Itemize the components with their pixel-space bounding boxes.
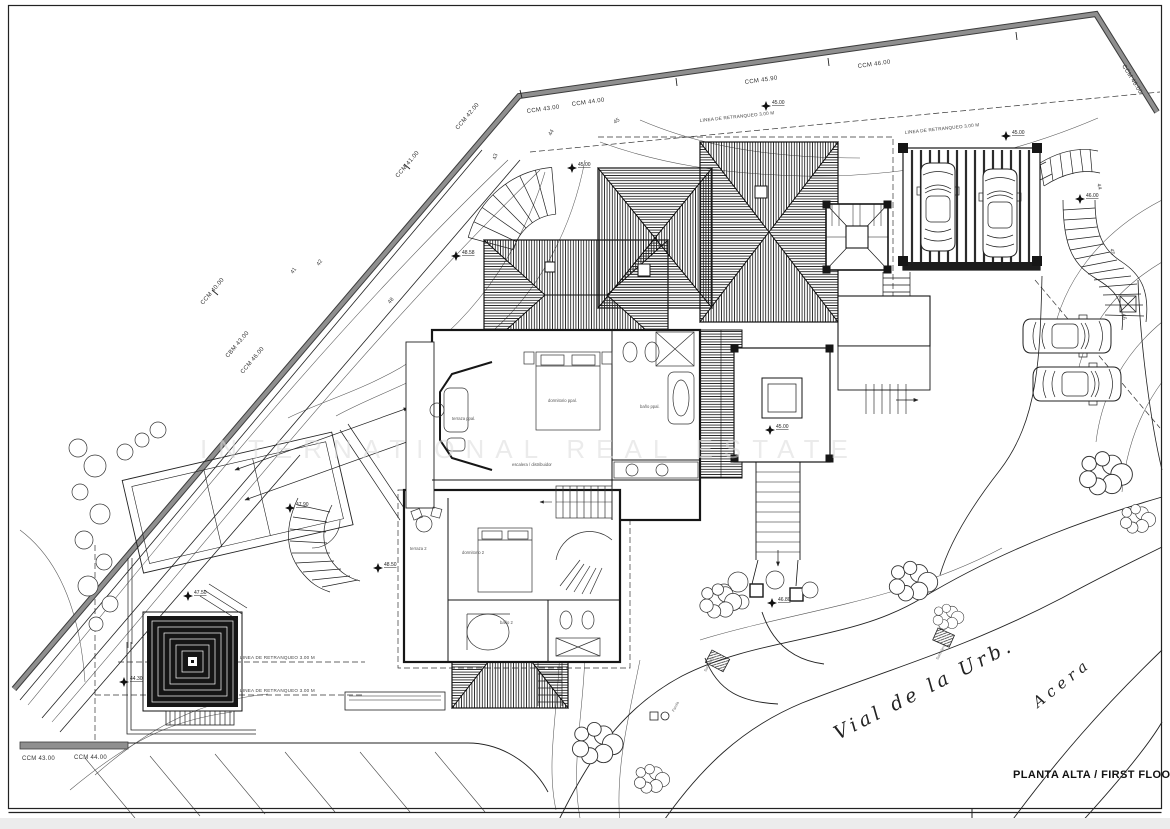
road-name-label: Vial de la Urb. bbox=[830, 634, 1017, 744]
plan-drawing: LINEA DE RETRANQUEO 3.00 M LINEA DE RETR… bbox=[0, 0, 1170, 829]
sidewalk-label: Acera bbox=[1028, 654, 1095, 712]
parked-car bbox=[1033, 363, 1121, 405]
parked-car bbox=[917, 163, 959, 251]
drawing-title: PLANTA ALTA / FIRST FLOOR bbox=[1013, 769, 1170, 781]
carport bbox=[898, 143, 1042, 270]
svg-text:45.00: 45.00 bbox=[772, 100, 785, 106]
wall-elevation-label: CCM 41.00 bbox=[395, 150, 421, 179]
svg-text:45: 45 bbox=[613, 117, 621, 125]
room-label: baño 2 bbox=[500, 620, 513, 625]
svg-text:48.50: 48.50 bbox=[384, 562, 397, 568]
wall-elevation-label: CCM 46.00 bbox=[240, 346, 266, 375]
interior-plan: terraza ppal. dormitorio ppal. baño ppal… bbox=[404, 330, 700, 662]
svg-text:44.30: 44.30 bbox=[130, 676, 143, 682]
room-label: dormitorio ppal. bbox=[548, 398, 577, 403]
svg-text:46: 46 bbox=[1120, 313, 1127, 320]
roof-main bbox=[700, 142, 838, 322]
wall-elevation-label: CCM 45.90 bbox=[744, 75, 778, 86]
stair-ramp-southwest bbox=[200, 498, 360, 620]
wall-elevation-label: CCM 44.00 bbox=[74, 755, 107, 761]
svg-text:45.00: 45.00 bbox=[1012, 130, 1025, 136]
setback-label: LINEA DE RETRANQUEO 3.00 M bbox=[240, 655, 315, 660]
room-label: baño ppal. bbox=[640, 404, 660, 409]
svg-text:43: 43 bbox=[492, 153, 499, 160]
lamp-base bbox=[650, 712, 658, 720]
svg-text:45.00: 45.00 bbox=[776, 424, 789, 430]
setback-label: LINEA DE RETRANQUEO 3.00 M bbox=[700, 110, 775, 123]
svg-text:44: 44 bbox=[1095, 183, 1102, 190]
wall-elevation-label: CBM 43.00 bbox=[225, 330, 251, 359]
svg-text:41: 41 bbox=[290, 267, 298, 275]
svg-text:48: 48 bbox=[387, 297, 396, 306]
wall-elevation-label: CCM 42.00 bbox=[455, 102, 481, 131]
patio-court bbox=[731, 345, 833, 601]
room-label: terraza 2 bbox=[410, 546, 427, 551]
wall-elevation-label: CCM 44.00 bbox=[571, 97, 605, 108]
svg-text:44: 44 bbox=[548, 129, 556, 137]
room-label: dormitorio 2 bbox=[462, 550, 485, 555]
setback-label: LINEA DE RETRANQUEO 3.00 M bbox=[240, 688, 315, 693]
drain-grate bbox=[933, 628, 955, 647]
svg-text:48.58: 48.58 bbox=[462, 250, 475, 256]
svg-text:45: 45 bbox=[1108, 248, 1115, 255]
svg-text:42: 42 bbox=[316, 259, 324, 267]
svg-text:47.90: 47.90 bbox=[296, 502, 309, 508]
setback-label: LINEA DE RETRANQUEO 3.00 M bbox=[905, 122, 980, 135]
room-label: terraza ppal. bbox=[452, 416, 475, 421]
lamp-label: Farola bbox=[671, 700, 680, 712]
wall-elevation-label: CCM 43.00 bbox=[22, 756, 55, 762]
lamp-icon bbox=[661, 712, 669, 720]
wall-elevation-label: CCM 46.00 bbox=[857, 59, 891, 70]
parked-car bbox=[1023, 315, 1111, 357]
roof-northwest bbox=[598, 168, 712, 308]
site-plan-sheet: LINEA DE RETRANQUEO 3.00 M LINEA DE RETR… bbox=[0, 0, 1170, 829]
drain-label: Sumidero bbox=[935, 644, 946, 660]
wall-elevation-label: CCM 40.00 bbox=[200, 277, 226, 306]
wall-elevation-label: CCM 43.00 bbox=[526, 104, 560, 115]
svg-text:45.00: 45.00 bbox=[578, 162, 591, 168]
svg-text:46.00: 46.00 bbox=[1086, 193, 1099, 199]
parked-car bbox=[979, 169, 1021, 257]
watermark-text: INTERNATIONAL REAL ESTATE bbox=[200, 434, 859, 464]
svg-text:47.50: 47.50 bbox=[194, 590, 207, 596]
svg-text:46.80: 46.80 bbox=[778, 597, 791, 603]
pavilion-roof bbox=[127, 612, 256, 734]
